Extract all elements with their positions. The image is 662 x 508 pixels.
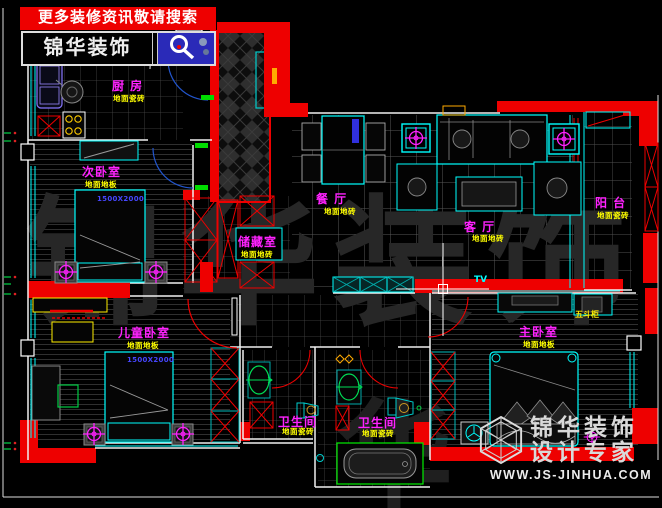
promo-banner-text: 更多装修资讯敬请搜索 bbox=[38, 10, 198, 26]
room-label-bath2: 卫生间 bbox=[358, 415, 397, 430]
room-note-kitchen: 地面瓷砖 bbox=[113, 93, 145, 103]
bathtub bbox=[337, 443, 423, 484]
bed-dimension: 1500X2000 bbox=[127, 356, 174, 364]
room-label-living: 客 厅 bbox=[463, 219, 495, 234]
corner-watermark: 锦华装饰 设计专家 WWW.JS-JINHUA.COM bbox=[478, 414, 662, 482]
stove bbox=[63, 112, 85, 138]
room-note-balcony: 地面瓷砖 bbox=[597, 210, 629, 220]
tv-label: TV bbox=[474, 275, 487, 285]
room-label-master: 主卧室 bbox=[519, 324, 558, 339]
room-note-living: 地面地砖 bbox=[472, 233, 504, 243]
side-cabinet bbox=[32, 366, 60, 420]
brand-search-box: 锦华装饰 bbox=[21, 31, 216, 66]
room-note-bath2: 地面瓷砖 bbox=[362, 428, 394, 438]
watermark-url: WWW.JS-JINHUA.COM bbox=[478, 468, 662, 482]
room-note-bath1: 地面瓷砖 bbox=[282, 426, 314, 436]
search-icon bbox=[158, 33, 214, 64]
room-note-master: 地面地板 bbox=[523, 339, 555, 349]
bed-dimension: 1500X2000 bbox=[97, 195, 144, 203]
room-label-kids: 儿童卧室 bbox=[117, 325, 170, 340]
promo-banner: 更多装修资讯敬请搜索 bbox=[20, 7, 216, 30]
elevator-call-panel bbox=[272, 68, 277, 84]
kitchen-sink bbox=[37, 62, 62, 108]
elevator-shaft bbox=[218, 32, 270, 202]
jinhua-logo-icon bbox=[478, 414, 524, 466]
magnifier-icon bbox=[158, 33, 214, 60]
room-note-storage: 地面地砖 bbox=[241, 249, 273, 259]
watermark-brand: 锦华装饰 bbox=[530, 415, 638, 440]
room-label-dining: 餐 厅 bbox=[316, 191, 347, 206]
watermark-tagline: 设计专家 bbox=[530, 440, 638, 465]
room-note-dining: 地面地砖 bbox=[324, 206, 356, 216]
tv-wall-cabinets bbox=[333, 277, 413, 292]
room-note-bedroom2: 地面地板 bbox=[85, 179, 117, 189]
room-note-kids: 地面地板 bbox=[127, 340, 159, 350]
room-label-balcony: 阳 台 bbox=[595, 195, 626, 210]
room-label-bedroom2: 次卧室 bbox=[82, 164, 121, 179]
room-label-kitchen: 厨 房 bbox=[112, 78, 143, 93]
cad-floorplan-screenshot: 锦华装饰 华 bbox=[0, 0, 662, 508]
dining-set bbox=[302, 116, 385, 184]
room-label-storage: 储藏室 bbox=[238, 234, 277, 249]
dimension-ticks bbox=[4, 132, 16, 451]
chest-label: 五斗柜 bbox=[575, 309, 599, 319]
brand-name: 锦华装饰 bbox=[23, 33, 152, 64]
pot-icon bbox=[61, 81, 83, 103]
